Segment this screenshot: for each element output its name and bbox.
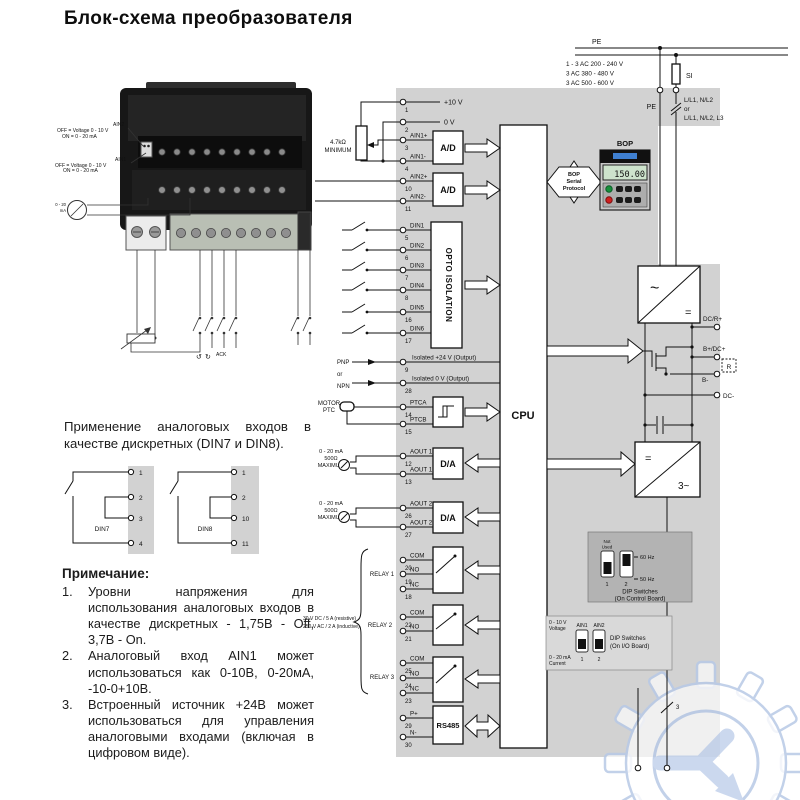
- rs485-label: RS485: [437, 721, 460, 730]
- bop-start-button: [606, 186, 612, 192]
- terminal-screws-mid: [159, 187, 286, 194]
- terminal-point: [400, 119, 406, 125]
- ain2-callout-title: AIN2: [113, 122, 124, 128]
- inverter-dc-symbol: =: [645, 453, 651, 465]
- fuse: [672, 64, 680, 84]
- io-ain1-label: AIN1: [576, 623, 587, 629]
- terminal-point: [400, 178, 406, 184]
- io-current-word: Current: [549, 661, 566, 667]
- terminal-label: AOUT 2-: [410, 520, 434, 527]
- page-title: Блок-схема преобразователя: [64, 8, 353, 30]
- din8-t1: 1: [242, 470, 246, 477]
- din7-t2: 2: [139, 495, 143, 502]
- terminal-label: COM: [410, 610, 424, 617]
- terminal-point: [400, 267, 406, 273]
- terminal-point: [400, 227, 406, 233]
- terminal-number: 27: [405, 533, 412, 539]
- motor-label: MOTOR: [318, 401, 341, 407]
- motor-ptc: MOTOR PTC: [318, 401, 400, 424]
- ad2-label: A/D: [440, 185, 456, 195]
- terminal-number: 21: [405, 637, 412, 643]
- terminal-point: [400, 614, 406, 620]
- terminal-label: AIN1+: [410, 133, 428, 140]
- pnp-npn-selection: PNP or NPN: [337, 359, 400, 390]
- terminal-label: P+: [410, 711, 418, 718]
- da2-label: D/A: [440, 513, 456, 523]
- terminal-label: AIN2-: [410, 194, 426, 201]
- note-item-2: 2. Аналоговый вход AIN1 может использова…: [62, 648, 314, 696]
- din-test-switches: ↺ ↻ ACK: [193, 250, 237, 361]
- dip-ctrl-num1: 1: [605, 582, 608, 588]
- note-number: 1.: [62, 584, 88, 648]
- rectifier-ac-symbol: ~: [650, 280, 659, 297]
- note-text: Уровни напряжения для использования анал…: [88, 584, 314, 648]
- not-used-1: Not: [603, 539, 611, 544]
- ain2-callout-on: ON = 0 - 20 mA: [62, 134, 98, 140]
- note-text: Аналоговый вход AIN1 может использоватьс…: [88, 648, 314, 696]
- terminal-screws-upper: [159, 149, 285, 155]
- terminal-label: DIN6: [410, 326, 425, 333]
- mains-voltage-1: 1 - 3 AC 200 - 240 V: [566, 61, 624, 68]
- potentiometer-circuit: 4.7kΩ MINIMUM: [325, 102, 401, 163]
- relay2-label: RELAY 2: [368, 623, 393, 629]
- line-config-or: or: [684, 106, 690, 113]
- ad1-label: A/D: [440, 143, 456, 153]
- terminal-label: PTCA: [410, 400, 427, 407]
- terminal-photo: [120, 82, 312, 250]
- note-number: 3.: [62, 697, 88, 761]
- bop-title: BOP: [617, 139, 633, 148]
- pnp-label: PNP: [337, 360, 349, 366]
- note-number: 2.: [62, 648, 88, 696]
- relay-annotations: 30 V DC / 5 A (resistive) 250 V AC / 2 A…: [303, 549, 395, 694]
- terminal-number: 15: [405, 430, 412, 436]
- npn-label: NPN: [337, 384, 350, 390]
- bminus-terminal-label: B-: [702, 377, 708, 384]
- line-config-2: L/L1, N/L2, L3: [684, 115, 724, 122]
- terminal-number: 18: [405, 595, 412, 601]
- terminal-point: [400, 99, 406, 105]
- terminal-label: AOUT 1-: [410, 467, 434, 474]
- relay3-label: RELAY 3: [370, 675, 395, 681]
- terminal-number: 23: [405, 699, 412, 705]
- terminal-number: 16: [405, 318, 412, 324]
- bop-diamond-l3: Protocol: [563, 186, 586, 192]
- terminal-label: COM: [410, 553, 424, 560]
- cpu-label: CPU: [511, 410, 534, 422]
- aout2-range: 0 - 20 mA: [319, 501, 343, 507]
- terminal-point: [400, 734, 406, 740]
- din8-figure: 1 2 10 11 DIN8: [170, 466, 259, 554]
- digital-input-switches: [342, 222, 400, 334]
- terminal-point: [400, 505, 406, 511]
- bop-display-value: 150.00: [614, 170, 645, 180]
- terminal-label: AOUT 2+: [410, 501, 436, 508]
- meter-label-2: mA: [60, 208, 66, 213]
- ain1-callout-on: ON = 0 - 20 mA: [63, 168, 99, 174]
- terminal-label: DIN3: [410, 263, 425, 270]
- terminal-point: [400, 628, 406, 634]
- brake-resistor-label: R: [727, 364, 732, 371]
- terminal-label: 0 V: [444, 120, 455, 127]
- mains-voltage-2: 3 AC 380 - 480 V: [566, 71, 615, 78]
- dip-ctrl-num2: 2: [624, 582, 627, 588]
- relay-brace: [354, 549, 368, 694]
- cpu-block: [500, 125, 547, 748]
- note-item-3: 3. Встроенный источник +24В может исполь…: [62, 697, 314, 761]
- terminal-point: [400, 158, 406, 164]
- din8-t4: 11: [242, 541, 249, 548]
- mains-voltage-3: 3 AC 500 - 600 V: [566, 80, 615, 87]
- bop-stop-button: [606, 197, 612, 203]
- terminal-label: AIN2+: [410, 174, 428, 181]
- terminal-point: [400, 287, 406, 293]
- pe-conductor-label: PE: [647, 104, 657, 111]
- note-text: Встроенный источник +24В может использов…: [88, 697, 314, 761]
- ptc-label: PTC: [323, 408, 336, 414]
- terminal-point: [400, 557, 406, 563]
- io-num2: 2: [598, 657, 601, 663]
- io-caption-1: DIP Switches: [610, 636, 646, 642]
- terminal-label: AIN1-: [410, 154, 426, 161]
- din8-label: DIN8: [198, 526, 213, 533]
- relay-blocks: [433, 547, 463, 702]
- io-caption-2: (On I/O Board): [610, 644, 649, 650]
- line-config-1: L/L1, N/L2: [684, 97, 714, 104]
- terminal-point: [400, 198, 406, 204]
- io-num1: 1: [581, 657, 584, 663]
- relay3-block: [433, 657, 463, 702]
- page: AIN2 OFF = Voltage 0 - 10 V ON = 0 - 20 …: [0, 0, 800, 800]
- ptc-trigger-block: [433, 397, 463, 427]
- relay1-label: RELAY 1: [370, 572, 395, 578]
- aout1-range: 0 - 20 mA: [319, 449, 343, 455]
- rotate-left-icon: ↺: [196, 354, 202, 361]
- terminal-point: [400, 453, 406, 459]
- terminal-point: [400, 330, 406, 336]
- relay2-block: [433, 605, 463, 645]
- terminal-point: [400, 571, 406, 577]
- bop-diamond-l1: BOP: [568, 172, 580, 178]
- din7-t1: 1: [139, 470, 143, 477]
- inverter-ac-symbol: 3~: [678, 481, 690, 492]
- terminal-point: [400, 421, 406, 427]
- terminal-number: 11: [405, 207, 412, 213]
- terminal-label: Isolated 0 V (Output): [412, 376, 469, 383]
- notes-heading: Примечание:: [62, 566, 314, 581]
- din7-label: DIN7: [95, 526, 110, 533]
- din8-t2: 2: [242, 495, 246, 502]
- or-label: or: [337, 372, 342, 378]
- terminal-point: [400, 660, 406, 666]
- terminal-point: [400, 471, 406, 477]
- pot-value-label: 4.7kΩ: [330, 140, 346, 146]
- green-terminal-strip: [170, 214, 298, 250]
- panel-notch: [658, 126, 722, 264]
- dcminus-terminal-label: DC-: [723, 393, 734, 400]
- hz50-label: 50 Hz: [640, 577, 655, 583]
- din7-t4: 4: [139, 541, 143, 548]
- terminal-number: 17: [405, 339, 412, 345]
- aout1-load: 500Ω: [324, 456, 337, 462]
- terminal-label: PTCB: [410, 417, 427, 424]
- dip-control-board: Not Used 60 Hz 50 Hz 1 2 DIP Switches (O…: [588, 532, 692, 603]
- opto-isolation-label: OPTO ISOLATION: [444, 248, 453, 323]
- terminal-point: [400, 715, 406, 721]
- terminal-point: [400, 675, 406, 681]
- terminal-label: Isolated +24 V (Output): [412, 355, 476, 362]
- bop-panel: BOP 150.00: [600, 139, 650, 210]
- dcr-terminal-label: DC/R+: [703, 316, 722, 323]
- terminal-point: [400, 359, 406, 365]
- terminal-label: NC: [410, 686, 419, 693]
- hz60-label: 60 Hz: [640, 555, 655, 561]
- terminal-point: [400, 524, 406, 530]
- meter-label-1: 0 - 20: [55, 202, 66, 207]
- aout2-load: 500Ω: [324, 508, 337, 514]
- terminal-label: DIN4: [410, 283, 425, 290]
- terminal-label: NC: [410, 582, 419, 589]
- bop-brand-badge: [613, 153, 637, 159]
- terminal-number: 13: [405, 480, 412, 486]
- relay1-block: [433, 547, 463, 593]
- aout-meter-2: 0 - 20 mA 500Ω MAXIMUM: [318, 501, 400, 527]
- ptc-sensor: [340, 402, 354, 411]
- not-used-2: Used: [602, 545, 613, 550]
- pe-bus-label: PE: [592, 39, 602, 46]
- dip-ctrl-caption-2: (On Control Board): [615, 597, 666, 603]
- terminal-point: [400, 247, 406, 253]
- potentiometer: [356, 126, 367, 160]
- terminal-label: AOUT 1+: [410, 449, 436, 456]
- terminal-point: [400, 586, 406, 592]
- pot-minimum-label: MINIMUM: [325, 148, 352, 154]
- aout-meter-1: 0 - 20 mA 500Ω MAXIMUM: [318, 449, 400, 474]
- ain1-callout-title: AIN1: [115, 157, 126, 163]
- ack-label: ACK: [216, 352, 227, 358]
- terminal-point: [400, 380, 406, 386]
- rectifier-dc-symbol: =: [685, 307, 691, 319]
- terminal-label: +10 V: [444, 100, 463, 107]
- din8-t3: 10: [242, 516, 250, 523]
- terminal-label: NO: [410, 671, 419, 678]
- photo-dip-switch: [141, 142, 152, 157]
- io-ain2-label: AIN2: [593, 623, 604, 629]
- bdc-terminal-label: B+/DC+: [703, 346, 726, 353]
- fuse-label: SI: [686, 73, 693, 80]
- terminal-number: 30: [405, 743, 412, 749]
- terminal-label: NO: [410, 567, 419, 574]
- terminal-label: DIN1: [410, 223, 425, 230]
- bop-diamond-l2: Serial: [567, 179, 582, 185]
- da1-label: D/A: [440, 459, 456, 469]
- terminal-point: [400, 404, 406, 410]
- terminal-point: [400, 137, 406, 143]
- terminal-label: N-: [410, 730, 417, 737]
- terminal-number: 28: [405, 389, 412, 395]
- io-voltage-word: Voltage: [549, 626, 566, 632]
- din7-t3: 3: [139, 516, 143, 523]
- terminal-label: NO: [410, 624, 419, 631]
- terminal-number: 10: [405, 187, 412, 193]
- terminal-label: DIN2: [410, 243, 425, 250]
- din7-figure: 1 2 3 4 DIN7: [65, 466, 154, 554]
- rotate-right-icon: ↻: [205, 354, 211, 361]
- dip-ctrl-caption-1: DIP Switches: [622, 590, 658, 596]
- notes-section: Примечание: 1. Уровни напряжения для исп…: [62, 566, 314, 761]
- note-item-1: 1. Уровни напряжения для использования а…: [62, 584, 314, 648]
- analog-usage-paragraph: Применение аналоговых входов в качестве …: [64, 418, 311, 453]
- terminal-point: [400, 309, 406, 315]
- dip-io-board: 0 - 10 V Voltage 0 - 20 mA Current AIN1 …: [546, 616, 672, 670]
- terminal-label: COM: [410, 656, 424, 663]
- terminal-point: [400, 690, 406, 696]
- terminal-label: DIN5: [410, 305, 425, 312]
